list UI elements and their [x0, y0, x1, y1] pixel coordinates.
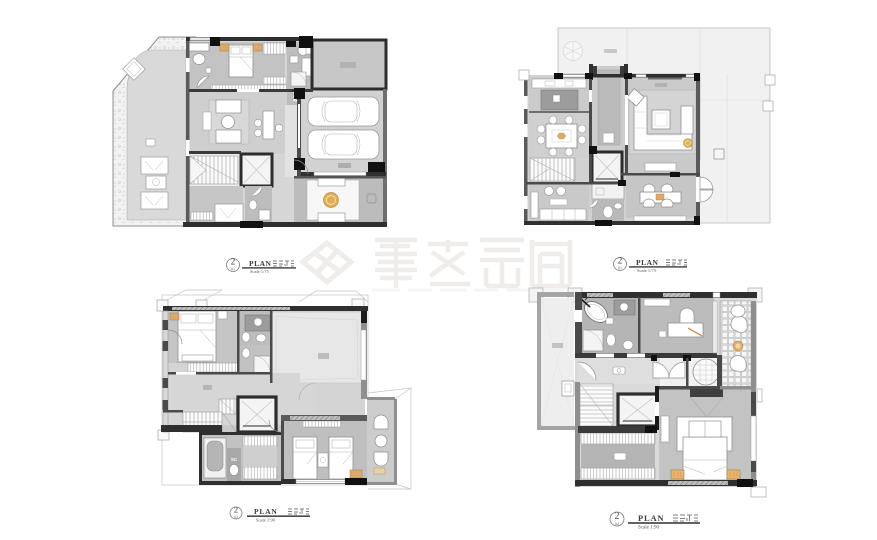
svg-text:Scale 1:75: Scale 1:75	[250, 269, 270, 274]
svg-text:04: 04	[615, 522, 619, 527]
svg-text:2: 2	[618, 256, 623, 266]
svg-text:01: 01	[231, 267, 235, 272]
svg-text:Scale 1:90: Scale 1:90	[638, 526, 659, 531]
svg-text:PLAN: PLAN	[636, 258, 659, 267]
svg-text:PLAN: PLAN	[249, 259, 272, 268]
svg-text:SC: SC	[231, 457, 238, 462]
svg-text:Scale 1:90: Scale 1:90	[256, 518, 276, 523]
svg-text:PLAN: PLAN	[254, 507, 278, 516]
svg-text:PLAN: PLAN	[638, 513, 664, 523]
svg-text:2: 2	[231, 257, 236, 267]
svg-text:Scale 1:75: Scale 1:75	[637, 268, 657, 273]
svg-text:03: 03	[234, 515, 238, 520]
svg-text:01: 01	[618, 266, 622, 271]
svg-text:2: 2	[615, 511, 620, 522]
svg-text:2: 2	[234, 505, 238, 515]
